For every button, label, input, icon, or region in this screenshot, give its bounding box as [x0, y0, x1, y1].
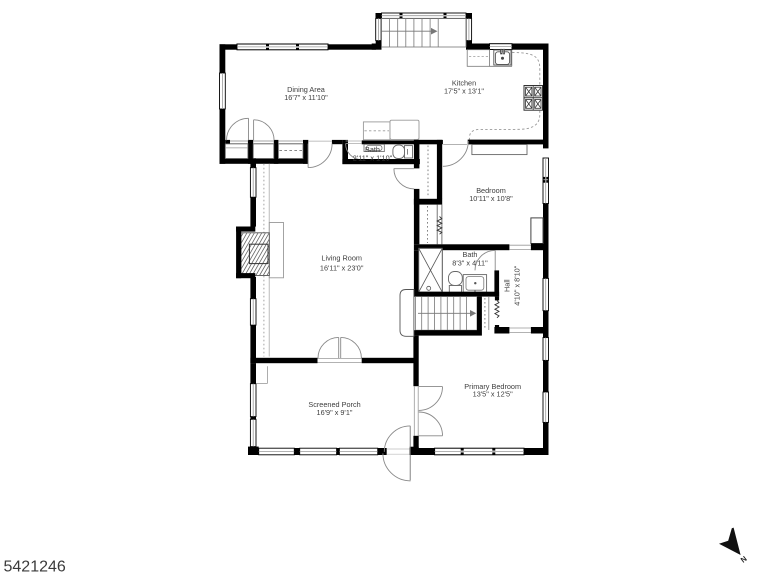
svg-text:Bath: Bath: [365, 145, 380, 154]
svg-text:2'11" x 1'10": 2'11" x 1'10": [353, 154, 393, 163]
svg-text:16'9" x 9'1": 16'9" x 9'1": [317, 408, 353, 417]
svg-text:16'7" x 11'10": 16'7" x 11'10": [284, 93, 328, 102]
svg-text:8'3" x 4'11": 8'3" x 4'11": [452, 258, 488, 267]
svg-text:10'11" x 10'8": 10'11" x 10'8": [469, 194, 513, 203]
svg-text:Living Room: Living Room: [321, 253, 362, 262]
svg-text:Hall: Hall: [503, 279, 512, 292]
svg-text:17'5" x 13'1": 17'5" x 13'1": [444, 87, 484, 96]
svg-text:5421246: 5421246: [4, 559, 66, 576]
svg-text:16'11" x 23'0": 16'11" x 23'0": [320, 263, 364, 272]
svg-text:13'5" x 12'5": 13'5" x 12'5": [473, 390, 513, 399]
svg-text:4'10" x 8'10": 4'10" x 8'10": [513, 265, 522, 305]
